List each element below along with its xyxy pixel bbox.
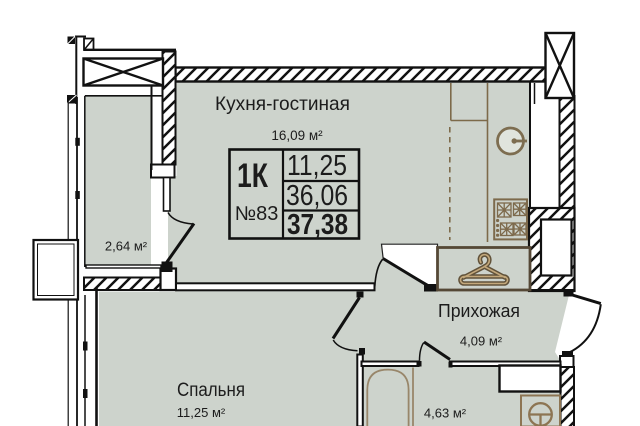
svg-text:16,09 м²: 16,09 м² (271, 128, 323, 143)
svg-text:11,25 м²: 11,25 м² (177, 405, 226, 420)
svg-text:11,25: 11,25 (287, 150, 347, 182)
svg-text:37,38: 37,38 (287, 209, 348, 241)
svg-text:№83: №83 (235, 203, 279, 225)
svg-text:4,09 м²: 4,09 м² (460, 334, 503, 349)
svg-text:Прихожая: Прихожая (438, 300, 520, 321)
svg-text:36,06: 36,06 (286, 180, 348, 212)
svg-text:Спальня: Спальня (177, 380, 245, 401)
svg-text:Кухня-гостиная: Кухня-гостиная (215, 93, 350, 115)
svg-text:1К: 1К (237, 157, 268, 195)
svg-text:4,63 м²: 4,63 м² (424, 406, 467, 421)
svg-text:2,64 м²: 2,64 м² (105, 239, 148, 254)
